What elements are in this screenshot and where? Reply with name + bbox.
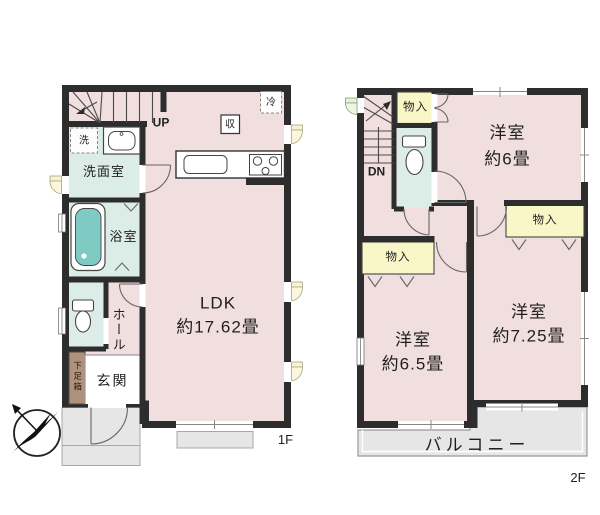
hall-label: ホール — [110, 308, 124, 353]
room-a-name-label: 洋室 — [490, 124, 526, 143]
floorplan-page: UP 洗 洗面室 浴室 ホール 下足箱 玄関 収 冷 LDK 約17.62畳 1… — [0, 0, 600, 515]
bathtub — [71, 204, 105, 271]
stair-down-label: DN — [368, 165, 385, 178]
terrace — [177, 432, 253, 449]
vanity-sink — [104, 127, 141, 154]
bathroom-label: 浴室 — [109, 230, 137, 244]
floor-2f — [346, 87, 590, 456]
room-b-name-label: 洋室 — [395, 332, 431, 351]
refrigerator-label: 冷 — [266, 97, 276, 108]
floor-1f-label: 1F — [278, 432, 293, 446]
floor-2f-label: 2F — [570, 470, 585, 484]
room-c-size-label: 約7.25畳 — [492, 328, 565, 347]
entrance-label: 玄関 — [97, 373, 129, 388]
room-c-name-label: 洋室 — [511, 304, 547, 323]
washroom-label: 洗面室 — [83, 165, 125, 179]
room-a-size-label: 約6畳 — [484, 151, 530, 170]
ldk-name-label: LDK — [200, 295, 236, 314]
closet-top-label: 物入 — [403, 102, 428, 115]
ldk-size-label: 約17.62畳 — [176, 318, 260, 337]
storage-label: 収 — [225, 119, 235, 130]
room-b-size-label: 約6.5畳 — [382, 355, 445, 374]
shoe-cabinet-label: 下足箱 — [72, 361, 81, 393]
kitchen-counter — [176, 151, 285, 178]
north-compass-icon — [12, 404, 60, 456]
stair-up-label: UP — [153, 116, 170, 129]
closet-left-label: 物入 — [386, 252, 411, 265]
entrance-step — [62, 446, 140, 466]
balcony-label: バルコニー — [425, 436, 530, 455]
kitchen-wall-bar — [246, 178, 285, 185]
closet-right-label: 物入 — [533, 215, 558, 228]
entrance-porch — [62, 408, 140, 446]
washer-label: 洗 — [79, 135, 89, 146]
toilet-door-gap — [104, 318, 109, 344]
